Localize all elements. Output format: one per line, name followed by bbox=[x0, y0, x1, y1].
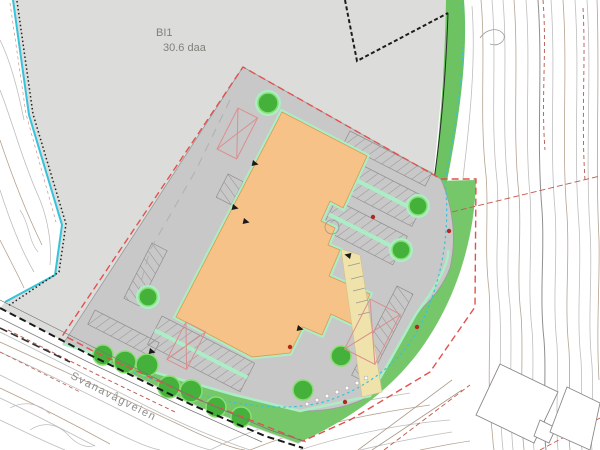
tree-canopy bbox=[392, 241, 410, 259]
light-dot bbox=[355, 381, 359, 385]
survey-marker bbox=[447, 229, 451, 233]
tree-canopy bbox=[258, 93, 278, 113]
site-plan-canvas: BI1 30.6 daa Svanavågveien bbox=[0, 0, 600, 450]
survey-marker bbox=[343, 400, 347, 404]
tree-canopy bbox=[409, 197, 427, 215]
survey-marker bbox=[288, 345, 292, 349]
light-dot bbox=[345, 386, 349, 390]
tree-canopy bbox=[293, 380, 313, 400]
zone-area-label: 30.6 daa bbox=[163, 42, 207, 54]
light-dot bbox=[325, 394, 329, 398]
zone-code-label: BI1 bbox=[156, 27, 173, 39]
survey-marker bbox=[415, 325, 419, 329]
light-dot bbox=[335, 390, 339, 394]
light-dot bbox=[364, 376, 368, 380]
light-dot bbox=[305, 402, 309, 406]
light-dot bbox=[315, 398, 319, 402]
survey-marker bbox=[371, 215, 375, 219]
tree-canopy bbox=[139, 288, 157, 306]
tree-canopy bbox=[331, 346, 351, 366]
site-plan: BI1 30.6 daa Svanavågveien bbox=[0, 0, 600, 450]
